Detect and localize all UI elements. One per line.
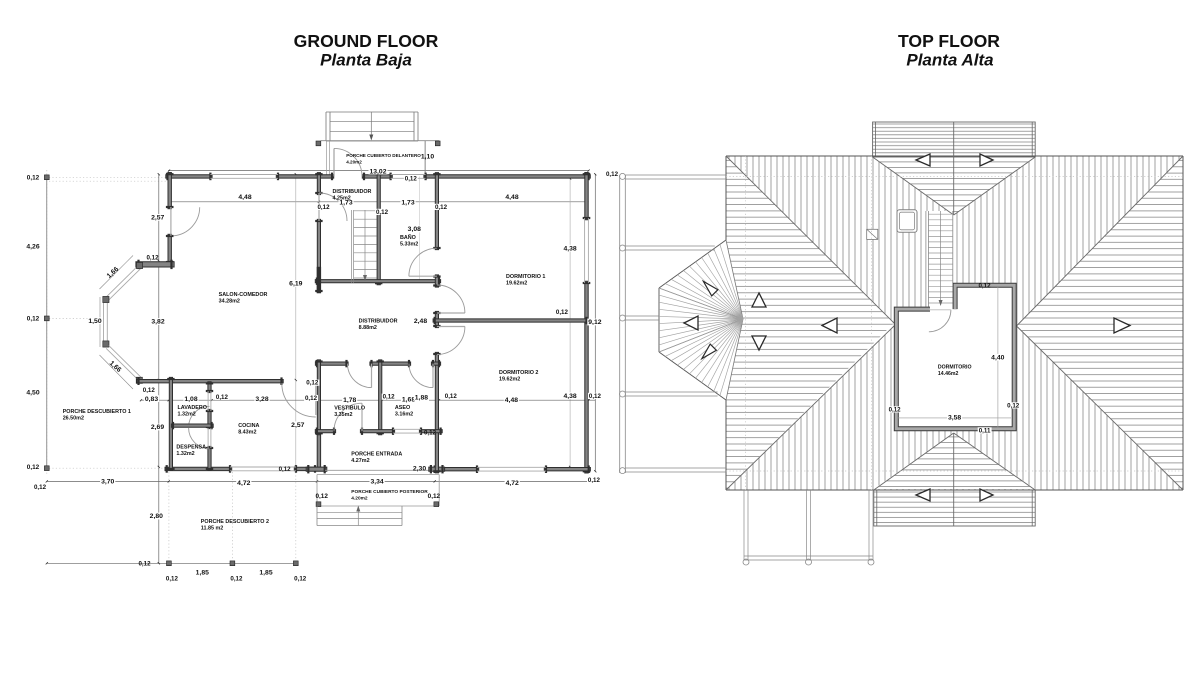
svg-text:4,40: 4,40 bbox=[991, 355, 1004, 362]
svg-text:8.88m2: 8.88m2 bbox=[359, 325, 377, 331]
svg-text:4,72: 4,72 bbox=[237, 480, 250, 487]
svg-text:13,02: 13,02 bbox=[369, 168, 386, 175]
svg-text:3,28: 3,28 bbox=[255, 396, 268, 403]
svg-text:0,12: 0,12 bbox=[279, 466, 292, 473]
svg-text:4.20m2: 4.20m2 bbox=[346, 159, 362, 164]
svg-text:0,12: 0,12 bbox=[230, 576, 243, 583]
svg-text:PORCHE ENTRADA: PORCHE ENTRADA bbox=[351, 452, 402, 458]
svg-text:0,12: 0,12 bbox=[428, 493, 441, 500]
svg-text:19.62m2: 19.62m2 bbox=[506, 280, 527, 286]
svg-text:26.50m2: 26.50m2 bbox=[63, 415, 84, 421]
svg-text:PORCHE DESCUBIERTO 1: PORCHE DESCUBIERTO 1 bbox=[63, 409, 131, 415]
svg-text:ASEO: ASEO bbox=[395, 405, 410, 411]
svg-text:0,12: 0,12 bbox=[588, 477, 601, 484]
svg-text:34.28m2: 34.28m2 bbox=[219, 298, 240, 304]
svg-text:4.27m2: 4.27m2 bbox=[351, 458, 369, 464]
svg-text:4,38: 4,38 bbox=[563, 393, 576, 400]
svg-text:0,12: 0,12 bbox=[445, 393, 458, 400]
svg-text:0,12: 0,12 bbox=[306, 380, 319, 387]
svg-text:2,80: 2,80 bbox=[150, 513, 163, 520]
svg-text:0,12: 0,12 bbox=[34, 484, 47, 491]
svg-text:4.20m2: 4.20m2 bbox=[351, 495, 368, 501]
svg-text:4,38: 4,38 bbox=[563, 245, 576, 252]
svg-text:3.16m2: 3.16m2 bbox=[395, 411, 413, 417]
svg-text:4,48: 4,48 bbox=[505, 194, 518, 201]
svg-text:0,12: 0,12 bbox=[138, 561, 151, 568]
svg-text:PORCHE CUBIERTO DELANTERO: PORCHE CUBIERTO DELANTERO bbox=[346, 153, 421, 158]
svg-text:19.62m2: 19.62m2 bbox=[499, 376, 520, 382]
svg-text:3,82: 3,82 bbox=[151, 319, 164, 326]
svg-text:4.25m2: 4.25m2 bbox=[333, 195, 351, 201]
svg-text:0,12: 0,12 bbox=[305, 395, 318, 402]
svg-text:3.35m2: 3.35m2 bbox=[334, 412, 352, 418]
svg-text:0,12: 0,12 bbox=[27, 464, 40, 471]
svg-text:6,19: 6,19 bbox=[289, 281, 302, 288]
svg-text:0,11: 0,11 bbox=[979, 427, 991, 434]
svg-text:1,10: 1,10 bbox=[421, 154, 434, 161]
svg-text:0,12: 0,12 bbox=[376, 209, 389, 216]
svg-text:1,85: 1,85 bbox=[259, 570, 272, 577]
svg-text:2,69: 2,69 bbox=[151, 424, 164, 431]
svg-text:SALON-COMEDOR: SALON-COMEDOR bbox=[219, 292, 268, 298]
svg-text:3,58: 3,58 bbox=[948, 414, 961, 421]
svg-text:DISTRIBUIDOR: DISTRIBUIDOR bbox=[333, 189, 372, 195]
svg-text:0,12: 0,12 bbox=[889, 406, 902, 413]
svg-text:0,12: 0,12 bbox=[556, 309, 569, 316]
svg-text:1.32m2: 1.32m2 bbox=[176, 451, 194, 457]
svg-text:0,12: 0,12 bbox=[216, 394, 229, 401]
svg-text:COCINA: COCINA bbox=[238, 423, 259, 429]
svg-text:DESPENSA: DESPENSA bbox=[176, 445, 206, 451]
svg-text:3,34: 3,34 bbox=[370, 478, 383, 485]
svg-text:DORMITORIO 2: DORMITORIO 2 bbox=[499, 370, 538, 376]
svg-text:4,48: 4,48 bbox=[505, 397, 518, 404]
svg-text:9,12: 9,12 bbox=[588, 319, 601, 326]
svg-text:0,12: 0,12 bbox=[166, 576, 179, 583]
svg-text:DISTRIBUIDOR: DISTRIBUIDOR bbox=[359, 319, 398, 325]
svg-text:1,73: 1,73 bbox=[401, 199, 414, 206]
svg-text:3,70: 3,70 bbox=[101, 478, 114, 485]
svg-text:DORMITORIO: DORMITORIO bbox=[938, 365, 972, 371]
svg-text:0,12: 0,12 bbox=[27, 175, 40, 182]
svg-text:VESTIBULO: VESTIBULO bbox=[334, 406, 365, 412]
svg-text:0,12: 0,12 bbox=[27, 316, 40, 323]
svg-text:8.43m2: 8.43m2 bbox=[238, 429, 256, 435]
svg-text:0,12: 0,12 bbox=[435, 204, 448, 211]
svg-text:0,83: 0,83 bbox=[145, 396, 158, 403]
svg-text:Planta Baja: Planta Baja bbox=[320, 51, 412, 70]
svg-text:5.33m2: 5.33m2 bbox=[400, 241, 418, 247]
svg-text:3,08: 3,08 bbox=[408, 226, 421, 233]
svg-text:14.46m2: 14.46m2 bbox=[938, 371, 959, 377]
svg-text:1,78: 1,78 bbox=[343, 397, 356, 404]
svg-text:PORCHE CUBIERTO POSTERIOR: PORCHE CUBIERTO POSTERIOR bbox=[351, 489, 428, 495]
svg-text:1,68: 1,68 bbox=[402, 397, 415, 404]
svg-text:2,48: 2,48 bbox=[414, 318, 427, 325]
svg-text:0,12: 0,12 bbox=[146, 255, 159, 262]
svg-text:1,50: 1,50 bbox=[88, 318, 101, 325]
svg-text:1,08: 1,08 bbox=[184, 396, 197, 403]
svg-text:0,12: 0,12 bbox=[405, 176, 418, 183]
svg-text:0,12: 0,12 bbox=[978, 282, 991, 289]
svg-text:Planta Alta: Planta Alta bbox=[906, 51, 993, 70]
svg-text:BAÑO: BAÑO bbox=[400, 234, 416, 241]
svg-text:PORCHE DESCUBIERTO 2: PORCHE DESCUBIERTO 2 bbox=[201, 519, 269, 525]
svg-text:DORMITORIO 1: DORMITORIO 1 bbox=[506, 274, 545, 280]
svg-text:GROUND FLOOR: GROUND FLOOR bbox=[294, 31, 439, 51]
svg-text:11.85 m2: 11.85 m2 bbox=[201, 525, 223, 531]
svg-text:4,72: 4,72 bbox=[506, 480, 519, 487]
svg-text:4,50: 4,50 bbox=[26, 390, 39, 397]
svg-text:1,85: 1,85 bbox=[196, 570, 209, 577]
svg-text:0,12: 0,12 bbox=[143, 387, 156, 394]
svg-text:1.32m2: 1.32m2 bbox=[178, 411, 196, 417]
svg-text:0,12: 0,12 bbox=[424, 430, 437, 437]
svg-text:0,12: 0,12 bbox=[1007, 402, 1020, 409]
svg-text:0,12: 0,12 bbox=[589, 393, 602, 400]
svg-text:0,12: 0,12 bbox=[315, 493, 328, 500]
svg-text:TOP FLOOR: TOP FLOOR bbox=[898, 31, 1000, 51]
svg-text:1,88: 1,88 bbox=[415, 395, 428, 402]
svg-text:4,48: 4,48 bbox=[238, 194, 251, 201]
svg-text:4,26: 4,26 bbox=[26, 244, 39, 251]
svg-text:2,30: 2,30 bbox=[413, 466, 426, 473]
svg-text:0,12: 0,12 bbox=[294, 576, 307, 583]
svg-text:0,12: 0,12 bbox=[606, 171, 619, 178]
svg-text:0,12: 0,12 bbox=[317, 204, 330, 211]
svg-text:LAVADERO: LAVADERO bbox=[178, 405, 207, 411]
svg-text:2,57: 2,57 bbox=[151, 215, 164, 222]
svg-text:2,57: 2,57 bbox=[291, 422, 304, 429]
svg-text:0,12: 0,12 bbox=[383, 394, 396, 401]
